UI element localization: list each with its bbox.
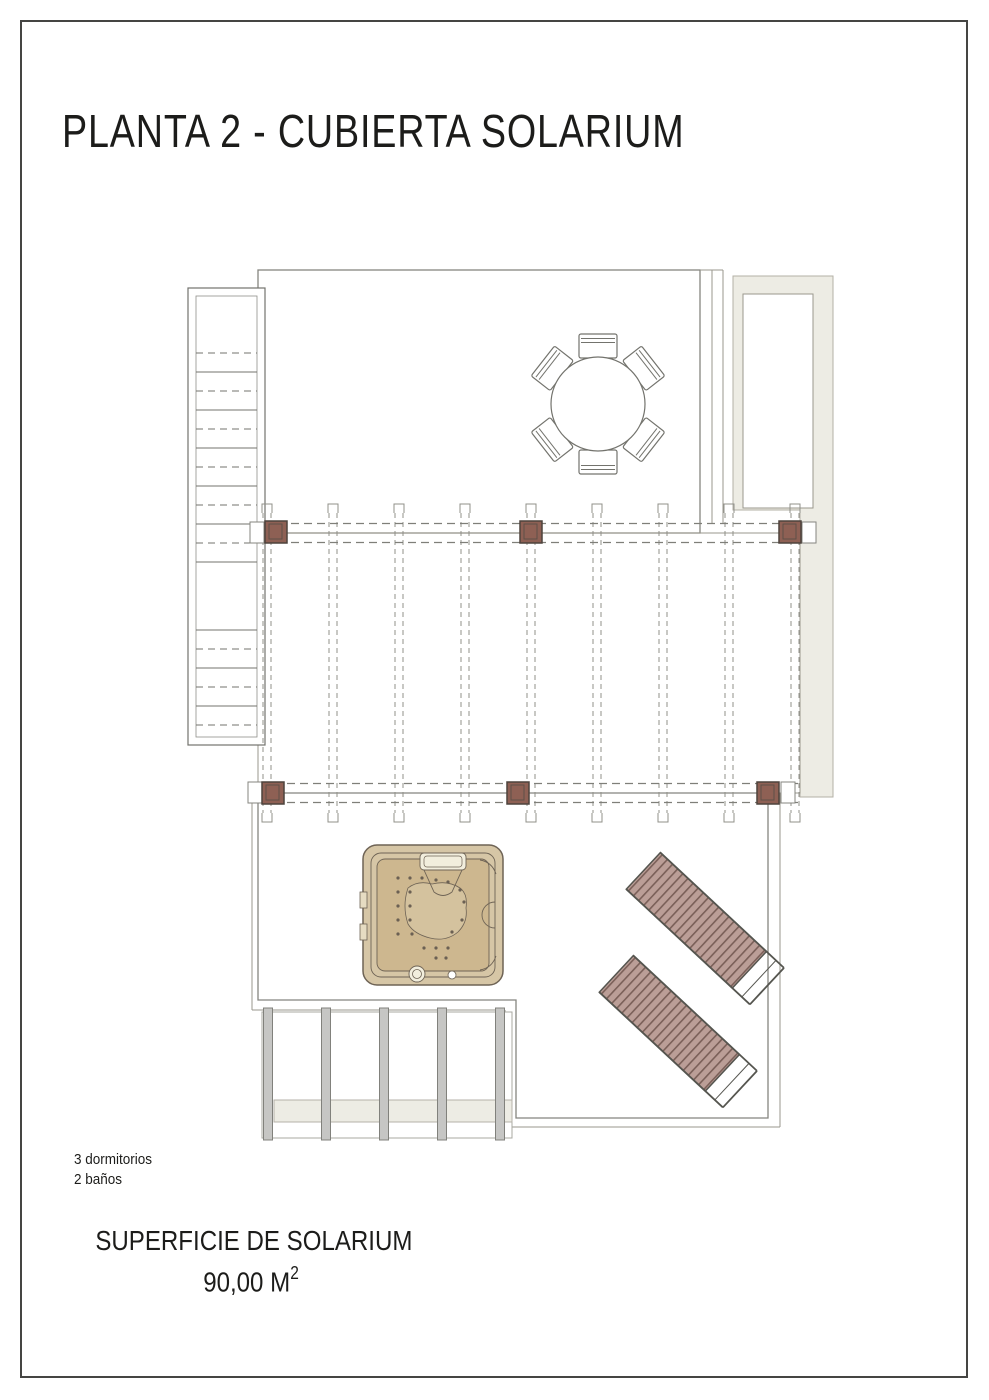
rafter-end-hooks (262, 504, 800, 822)
spa-control (409, 966, 425, 982)
surface-block: SUPERFICIE DE SOLARIUM 90,00 M2 (70, 1224, 432, 1299)
spa-floor (405, 883, 466, 939)
surface-superscript: 2 (290, 1263, 299, 1283)
post (520, 521, 542, 543)
pergola (248, 504, 816, 822)
lower-floor-glazing (262, 1008, 512, 1140)
post (262, 782, 284, 804)
round-table (551, 357, 645, 451)
post (507, 782, 529, 804)
pergola-posts (262, 521, 801, 804)
post (265, 521, 287, 543)
surface-label: SUPERFICIE DE SOLARIUM (95, 1224, 406, 1258)
floor-plan-page: PLANTA 2 - CUBIERTA SOLARIUM (0, 0, 989, 1400)
jacuzzi (360, 845, 503, 985)
post (757, 782, 779, 804)
upper-terrace (258, 270, 723, 533)
staircase (188, 288, 265, 745)
floor-plan-drawing (0, 0, 989, 1400)
skylight (743, 294, 813, 508)
dining-set (531, 334, 665, 474)
bedrooms-label: 3 dormitorios (74, 1150, 161, 1170)
pergola-deck (258, 533, 800, 793)
surface-value: 90,00 M2 (95, 1258, 406, 1299)
pergola-rafters (263, 513, 799, 813)
bathrooms-label: 2 baños (74, 1170, 161, 1190)
wall-band (274, 1100, 512, 1122)
spa-pillow (420, 853, 466, 870)
unit-details: 3 dormitorios 2 baños (74, 1150, 161, 1190)
post (779, 521, 801, 543)
